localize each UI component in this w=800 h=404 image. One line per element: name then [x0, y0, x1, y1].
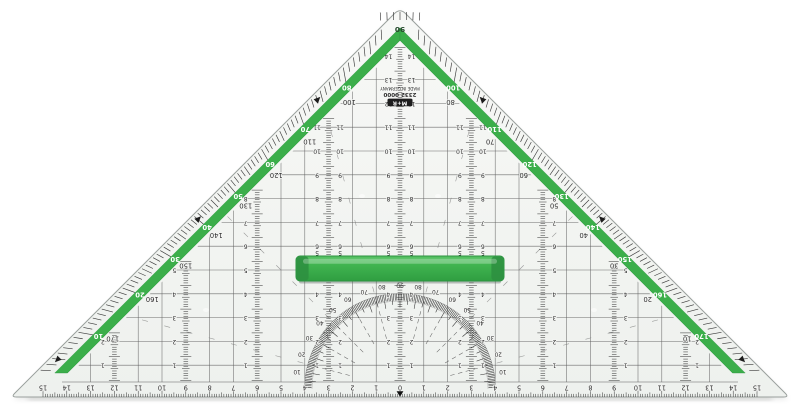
protractor-ring-label: 20 — [298, 350, 306, 356]
degree-label-inner: 140 — [210, 231, 223, 239]
molded-bump — [203, 308, 209, 312]
column-number: 3 — [624, 314, 628, 321]
column-number: 3 — [338, 314, 342, 321]
ruler-number: 10 — [634, 383, 642, 391]
protractor-ring-label: 10 — [499, 368, 507, 374]
column-number: 3 — [315, 314, 319, 321]
degree-label-inner: 10 — [683, 334, 692, 342]
column-number: 4 — [244, 290, 248, 297]
column-number: 11 — [336, 124, 344, 131]
molded-bump — [435, 194, 441, 198]
column-number: 8 — [409, 195, 413, 202]
column-number: 3 — [552, 314, 556, 321]
ruler-number: 7 — [564, 383, 568, 391]
degree-label-inner: 110 — [303, 137, 316, 145]
protractor-ring-label: 30 — [306, 334, 314, 340]
column-number: 10 — [385, 148, 393, 155]
column-number: 8 — [315, 195, 319, 202]
column-number: 4 — [552, 290, 556, 297]
degree-label-inner: 100 — [343, 98, 356, 106]
column-number: 10 — [479, 148, 487, 155]
apex-90-label: 90 — [395, 25, 405, 34]
degree-label-band: 20 — [135, 290, 145, 298]
column-number: 1 — [458, 362, 462, 369]
column-number: 9 — [338, 171, 342, 178]
ruler-number: 2 — [445, 383, 449, 391]
handle-highlight — [303, 259, 497, 264]
column-number: 6 — [386, 243, 390, 250]
column-number: 1 — [172, 362, 176, 369]
degree-label-band: 10 — [94, 332, 104, 340]
column-number: 11 — [408, 124, 416, 131]
column-number: 8 — [458, 195, 462, 202]
degree-label-band: 60 — [265, 160, 275, 168]
column-number: 1 — [244, 362, 248, 369]
column-number: 6 — [458, 243, 462, 250]
degree-label-band: 150 — [618, 255, 632, 263]
degree-label-band: 70 — [300, 125, 310, 133]
column-number: 8 — [481, 195, 485, 202]
column-number: 10 — [408, 148, 416, 155]
column-number: 9 — [409, 171, 413, 178]
column-number: 1 — [624, 362, 628, 369]
degree-label-band: 140 — [586, 223, 600, 231]
column-number: 1 — [101, 362, 105, 369]
column-number: 2 — [624, 338, 628, 345]
column-number: 6 — [409, 243, 413, 250]
column-number: 4 — [172, 290, 176, 297]
ruler-number: 4 — [303, 383, 307, 391]
ruler-number: 12 — [681, 383, 689, 391]
degree-label-inner: 60 — [519, 171, 528, 179]
set-square-photo: 1020304050607080908070605040302010112233… — [0, 0, 800, 404]
degree-label-band: 100 — [446, 84, 460, 92]
degree-label-band: 50 — [233, 192, 243, 200]
column-number: 8 — [386, 195, 390, 202]
degree-label-band: 160 — [653, 290, 667, 298]
column-number: 4 — [315, 290, 319, 297]
column-number: 3 — [386, 314, 390, 321]
column-number: 3 — [481, 314, 485, 321]
degree-label-inner: 70 — [486, 137, 495, 145]
degree-label-band: 170 — [694, 332, 708, 340]
ruler-number: 15 — [753, 383, 761, 391]
column-number: 2 — [409, 338, 413, 345]
column-number: 11 — [385, 124, 393, 131]
molded-bump — [591, 308, 597, 312]
ruler-number: 14 — [729, 383, 737, 391]
protractor-ring-label: 30 — [487, 334, 495, 340]
degree-label-inner: 40 — [579, 231, 588, 239]
ruler-number: 4 — [493, 383, 497, 391]
column-number: 2 — [172, 338, 176, 345]
column-number: 1 — [409, 362, 413, 369]
ruler-number: 13 — [705, 383, 713, 391]
handle — [296, 256, 504, 284]
brand-origin-text: MADE IN GERMANY — [380, 86, 420, 91]
degree-label-band: 120 — [522, 160, 536, 168]
ruler-number: 15 — [39, 383, 47, 391]
ruler-number: 8 — [207, 383, 211, 391]
column-number: 11 — [456, 124, 464, 131]
column-number: 4 — [481, 290, 485, 297]
protractor-ring-label: 20 — [494, 350, 502, 356]
column-number: 9 — [386, 171, 390, 178]
ruler-number: 12 — [110, 383, 118, 391]
degree-label-inner: 80 — [446, 98, 455, 106]
degree-label-inner: 150 — [179, 261, 192, 269]
column-number: 7 — [315, 219, 319, 226]
degree-label-inner: 20 — [643, 295, 652, 303]
column-number: 9 — [458, 171, 462, 178]
column-number: 2 — [481, 338, 485, 345]
column-number: 2 — [458, 338, 462, 345]
protractor-ring-label: 60 — [448, 296, 456, 302]
column-number: 1 — [481, 362, 485, 369]
ruler-number: 11 — [134, 383, 142, 391]
column-number: 1 — [386, 362, 390, 369]
column-number: 6 — [481, 243, 485, 250]
column-number: 10 — [456, 148, 464, 155]
column-number: 6 — [315, 243, 319, 250]
protractor-ring-label: 80 — [378, 283, 386, 289]
column-number: 4 — [409, 290, 413, 297]
column-number: 2 — [386, 338, 390, 345]
column-number: 4 — [624, 290, 628, 297]
column-number: 9 — [481, 171, 485, 178]
column-number: 5 — [244, 267, 248, 274]
protractor-ring-label: 60 — [344, 296, 352, 302]
column-number: 13 — [408, 76, 416, 83]
degree-label-inner: 160 — [146, 295, 159, 303]
column-number: 7 — [386, 219, 390, 226]
degree-label-inner: 30 — [610, 261, 619, 269]
ruler-number: 3 — [469, 383, 473, 391]
ruler-number: 2 — [350, 383, 354, 391]
column-number: 1 — [552, 362, 556, 369]
column-number: 7 — [481, 219, 485, 226]
column-number: 6 — [244, 243, 248, 250]
column-number: 6 — [552, 243, 556, 250]
column-number: 9 — [315, 171, 319, 178]
ruler-number: 10 — [158, 383, 166, 391]
ruler-number: 11 — [658, 383, 666, 391]
degree-label-band: 80 — [342, 84, 352, 92]
ruler-number: 9 — [184, 383, 188, 391]
degree-label-inner: 130 — [239, 201, 252, 209]
ruler-number: 14 — [63, 383, 71, 391]
column-number: 10 — [336, 148, 344, 155]
column-number: 1 — [695, 362, 699, 369]
column-number: 2 — [244, 338, 248, 345]
column-number: 7 — [409, 219, 413, 226]
column-number: 7 — [338, 219, 342, 226]
protractor-ring-label: 70 — [432, 288, 440, 294]
column-number: 7 — [244, 219, 248, 226]
column-number: 4 — [338, 290, 342, 297]
ruler-number: 8 — [588, 383, 592, 391]
column-number: 2 — [315, 338, 319, 345]
protractor-ring-label: 80 — [414, 283, 422, 289]
column-number: 1 — [315, 362, 319, 369]
column-number: 2 — [338, 338, 342, 345]
column-number: 7 — [458, 219, 462, 226]
brand-model-text: 2332 0000 — [383, 91, 416, 97]
brand-logo-text: M+R — [392, 100, 407, 106]
ruler-number: 9 — [612, 383, 616, 391]
column-number: 6 — [338, 243, 342, 250]
column-number: 3 — [172, 314, 176, 321]
molded-bump — [359, 194, 365, 198]
ruler-number: 5 — [517, 383, 521, 391]
ruler-number: 1 — [374, 383, 378, 391]
degree-label-inner: 170 — [106, 334, 119, 342]
ruler-number: 0 — [398, 383, 402, 391]
degree-label-inner: 50 — [550, 201, 559, 209]
ruler-number: 13 — [86, 383, 94, 391]
column-number: 7 — [552, 219, 556, 226]
ruler-number: 6 — [255, 383, 259, 391]
degree-label-band: 130 — [554, 192, 568, 200]
degree-label-inner: 120 — [270, 171, 283, 179]
degree-label-band: 110 — [487, 125, 501, 133]
protractor-ring-label: 70 — [360, 288, 368, 294]
column-number: 4 — [458, 290, 462, 297]
column-number: 3 — [458, 314, 462, 321]
degree-label-band: 30 — [170, 255, 180, 263]
column-number: 1 — [338, 362, 342, 369]
degree-label-band: 40 — [202, 223, 212, 231]
column-number: 2 — [552, 338, 556, 345]
set-square-svg: 1020304050607080908070605040302010112233… — [0, 0, 800, 404]
ruler-number: 6 — [541, 383, 545, 391]
column-number: 8 — [338, 195, 342, 202]
column-number: 3 — [409, 314, 413, 321]
ruler-number: 7 — [231, 383, 235, 391]
column-number: 5 — [552, 267, 556, 274]
ruler-number: 3 — [326, 383, 330, 391]
column-number: 13 — [385, 76, 393, 83]
column-number: 3 — [244, 314, 248, 321]
ruler-number: 5 — [279, 383, 283, 391]
column-number: 10 — [313, 148, 321, 155]
column-number: 4 — [386, 290, 390, 297]
ruler-number: 1 — [422, 383, 426, 391]
protractor-ring-label: 10 — [293, 368, 301, 374]
